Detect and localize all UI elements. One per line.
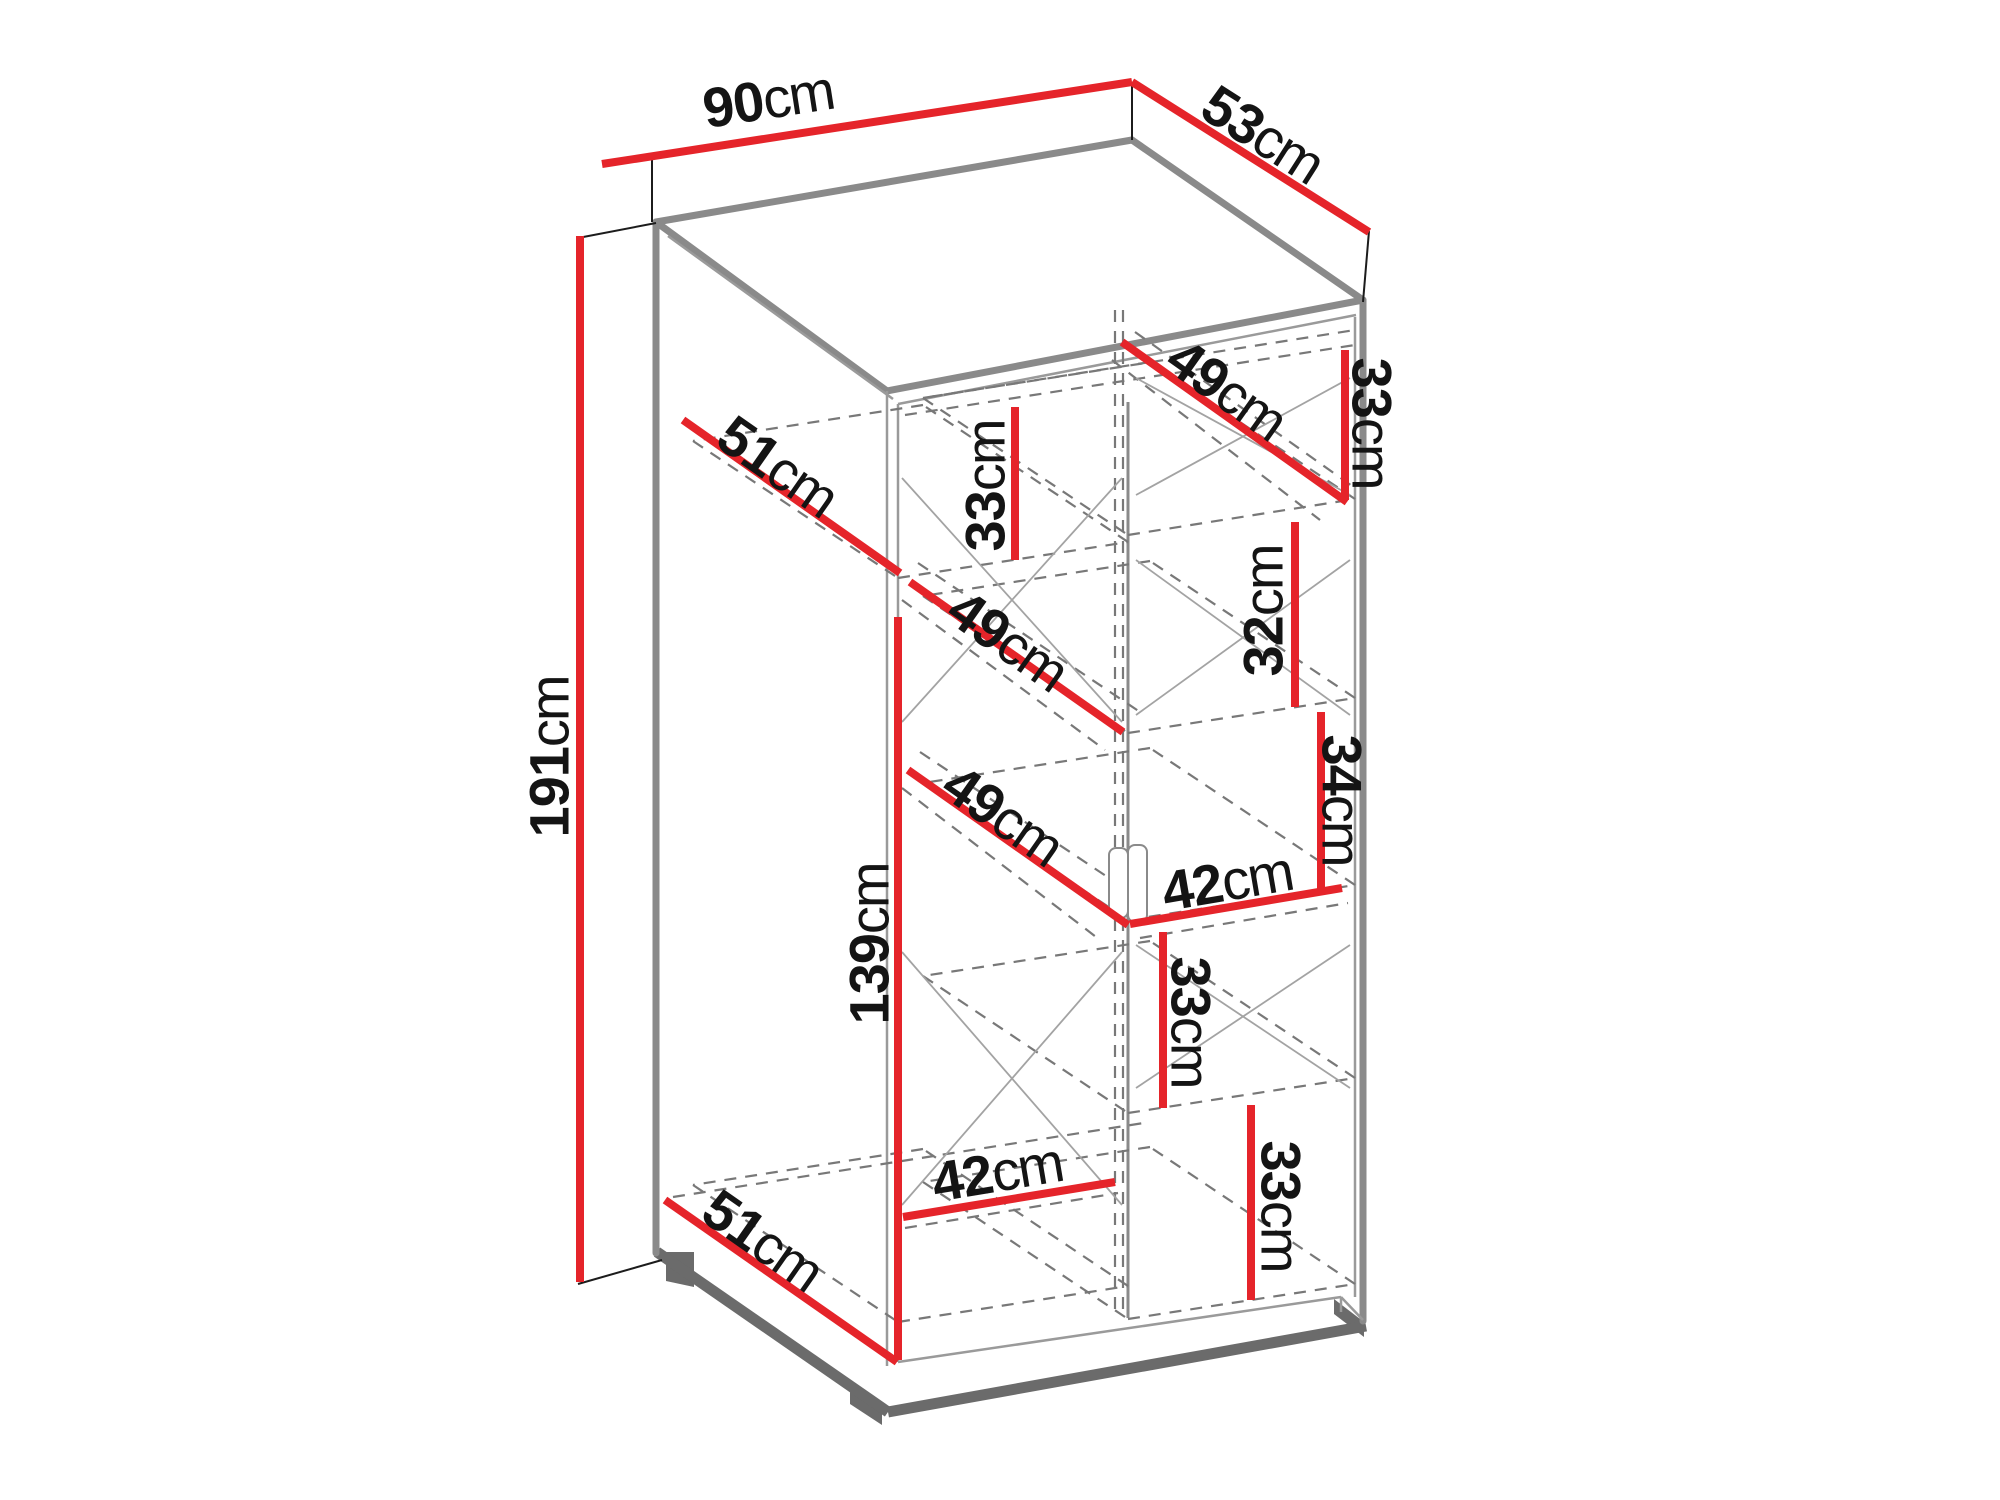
dimension-extension-lines <box>578 82 1369 1284</box>
dim-value: 33 <box>954 491 1017 551</box>
shelf-right-4 <box>923 941 1355 1113</box>
door-bottom-edge <box>898 1297 1341 1362</box>
dim-label-left-section-height: 139cm <box>837 863 902 1024</box>
dim-value: 42 <box>1157 851 1227 923</box>
dim-label-section-height-right-5: 33cm <box>1249 1141 1314 1272</box>
dim-unit: cm <box>1232 546 1295 617</box>
dim-unit: cm <box>758 58 837 131</box>
dim-value: 33 <box>1250 1141 1313 1201</box>
top-back-right-edge <box>1132 140 1363 300</box>
dim-unit: cm <box>1160 1017 1223 1088</box>
dim-value: 34 <box>1311 735 1374 795</box>
top-left-front-edge <box>656 222 887 391</box>
dim-unit: cm <box>518 676 581 747</box>
dim-unit: cm <box>987 1130 1067 1204</box>
dim-label-section-height-right-4: 33cm <box>1159 957 1224 1088</box>
dim-value: 32 <box>1232 616 1295 676</box>
dim-unit: cm <box>838 863 901 934</box>
dim-label-height-overall: 191cm <box>517 676 582 837</box>
dim-label-top-section-height-right: 33cm <box>1340 358 1405 489</box>
dim-value: 33 <box>1341 358 1404 418</box>
dim-label-top-section-height-left: 33cm <box>953 421 1018 552</box>
dim-unit: cm <box>1217 839 1297 913</box>
wardrobe-line-art <box>0 0 2000 1500</box>
dim-unit: cm <box>1311 795 1374 866</box>
dim-value: 139 <box>838 934 901 1024</box>
dim-unit: cm <box>1341 418 1404 489</box>
door-handle <box>1109 845 1147 922</box>
dim-value: 191 <box>518 747 581 837</box>
top-back-left-edge <box>656 140 1132 222</box>
dim-value: 90 <box>698 69 767 140</box>
wardrobe-dimension-diagram: 90cm53cm191cm51cm33cm49cm33cm49cm32cm34c… <box>0 0 2000 1500</box>
dim-value: 33 <box>1160 957 1223 1017</box>
dim-value: 42 <box>927 1142 997 1214</box>
dim-unit: cm <box>954 421 1017 492</box>
dim-unit: cm <box>1250 1201 1313 1272</box>
dim-label-section-height-right-2: 32cm <box>1231 546 1296 677</box>
dim-label-section-height-right-3: 34cm <box>1310 735 1375 866</box>
